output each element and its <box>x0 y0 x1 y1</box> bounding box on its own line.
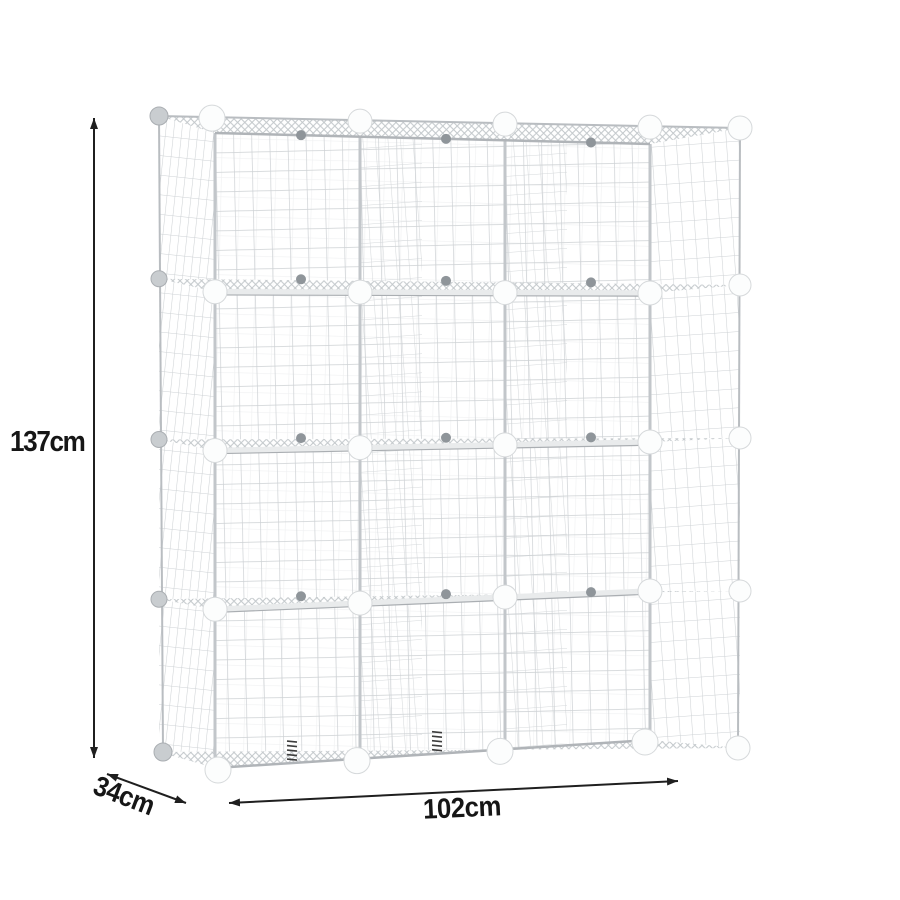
joint-ball <box>154 743 172 761</box>
spring-clamp <box>287 750 297 751</box>
connector-ball <box>729 274 751 296</box>
spring-clamp <box>432 732 442 733</box>
connector-ball <box>348 591 372 615</box>
joint-ball <box>151 591 167 607</box>
joint-knob <box>441 433 451 443</box>
connector-ball <box>205 757 231 783</box>
spring-clamp <box>432 736 442 737</box>
joint-knob <box>296 130 306 140</box>
spring-clamp <box>287 759 297 760</box>
spring-clamp <box>432 745 442 746</box>
height-dimension-label: 137cm <box>10 426 85 459</box>
connector-ball <box>493 585 517 609</box>
joint-knob <box>296 591 306 601</box>
connector-ball <box>493 433 517 457</box>
connector-ball <box>348 436 372 460</box>
joint-knob <box>441 276 451 286</box>
connector-ball <box>348 280 372 304</box>
joint-ball <box>151 432 167 448</box>
connector-ball <box>729 427 751 449</box>
spring-clamp <box>287 755 297 756</box>
connector-ball <box>638 281 662 305</box>
connector-ball <box>493 112 517 136</box>
joint-ball <box>151 271 167 287</box>
connector-ball <box>487 738 513 764</box>
connector-ball <box>203 439 227 463</box>
joint-knob <box>586 587 596 597</box>
joint-knob <box>586 277 596 287</box>
connector-ball <box>726 736 750 760</box>
joint-knob <box>586 432 596 442</box>
product-dimension-diagram: 137cm 102cm 34cm <box>0 0 900 900</box>
spring-clamp <box>287 741 297 742</box>
connector-ball <box>632 729 658 755</box>
joint-knob <box>296 274 306 284</box>
connector-ball <box>728 116 752 140</box>
connector-ball <box>203 597 227 621</box>
shelf-front-bar <box>215 292 650 293</box>
connector-ball <box>493 281 517 305</box>
connector-ball <box>638 579 662 603</box>
connector-ball <box>729 580 751 602</box>
connector-ball <box>638 115 662 139</box>
joint-knob <box>586 138 596 148</box>
connector-ball <box>348 109 372 133</box>
joint-ball <box>150 107 168 125</box>
spring-clamp <box>432 741 442 742</box>
wire-cube-organizer <box>150 105 752 783</box>
connector-ball <box>199 105 225 131</box>
spring-clamp <box>432 750 442 751</box>
right-side-panel <box>650 128 740 748</box>
spring-clamp <box>287 746 297 747</box>
joint-knob <box>441 134 451 144</box>
connector-ball <box>203 280 227 304</box>
joint-knob <box>441 589 451 599</box>
organizer-illustration <box>0 0 900 900</box>
connector-ball <box>638 430 662 454</box>
joint-knob <box>296 433 306 443</box>
connector-ball <box>344 748 370 774</box>
